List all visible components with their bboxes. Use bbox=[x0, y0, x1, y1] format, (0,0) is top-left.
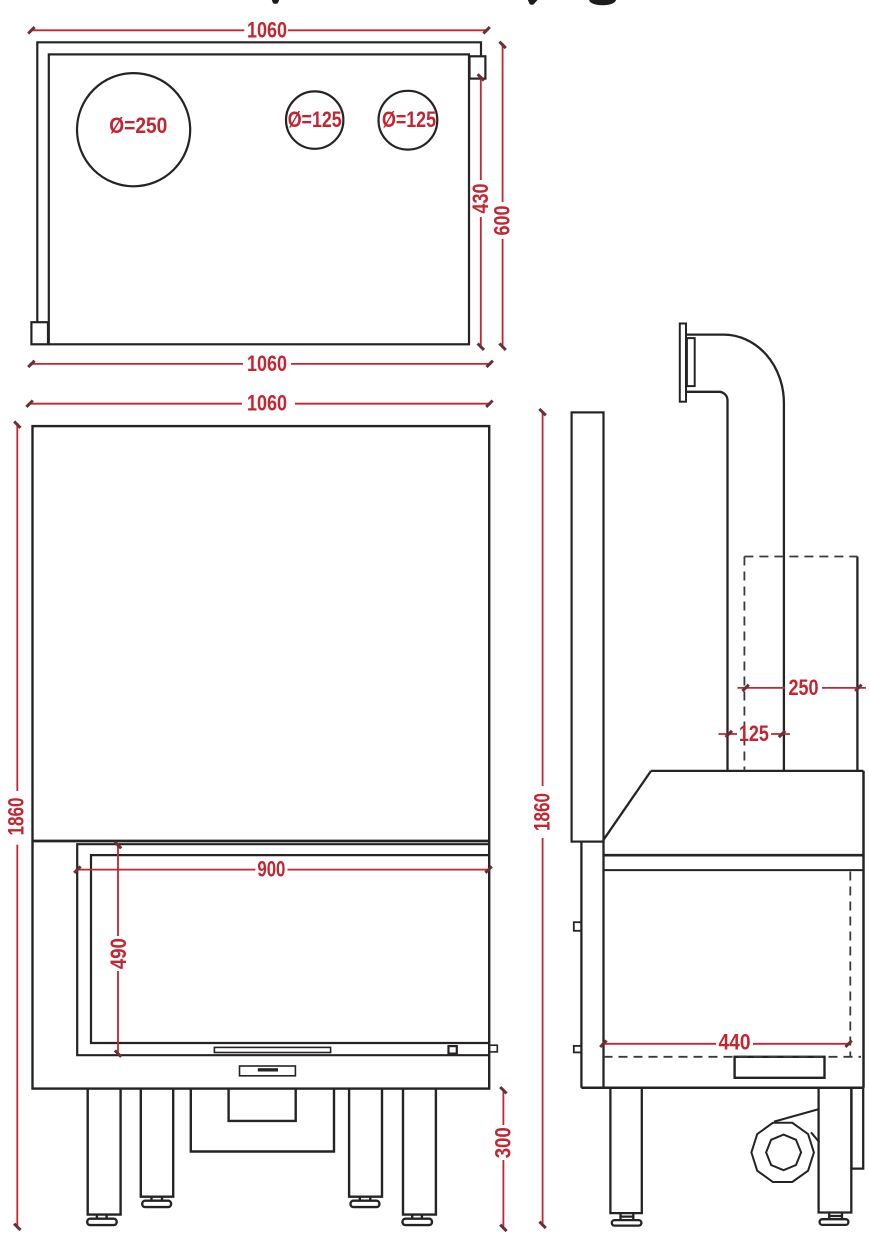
svg-text:1060: 1060 bbox=[247, 17, 287, 42]
svg-text:125: 125 bbox=[739, 721, 769, 746]
svg-text:600: 600 bbox=[490, 206, 515, 236]
svg-text:440: 440 bbox=[719, 1029, 751, 1054]
svg-text:250: 250 bbox=[789, 675, 819, 700]
svg-text:490: 490 bbox=[106, 938, 131, 969]
svg-text:900: 900 bbox=[257, 856, 285, 881]
svg-text:Ø=125: Ø=125 bbox=[288, 107, 342, 132]
svg-text:Ø=250: Ø=250 bbox=[109, 113, 167, 138]
svg-text:1060: 1060 bbox=[247, 351, 287, 376]
svg-text:1860: 1860 bbox=[4, 798, 29, 836]
svg-text:Ø=125: Ø=125 bbox=[382, 107, 436, 132]
svg-text:1860: 1860 bbox=[530, 793, 555, 831]
svg-text:300: 300 bbox=[490, 1127, 515, 1158]
svg-text:1060: 1060 bbox=[247, 391, 287, 416]
